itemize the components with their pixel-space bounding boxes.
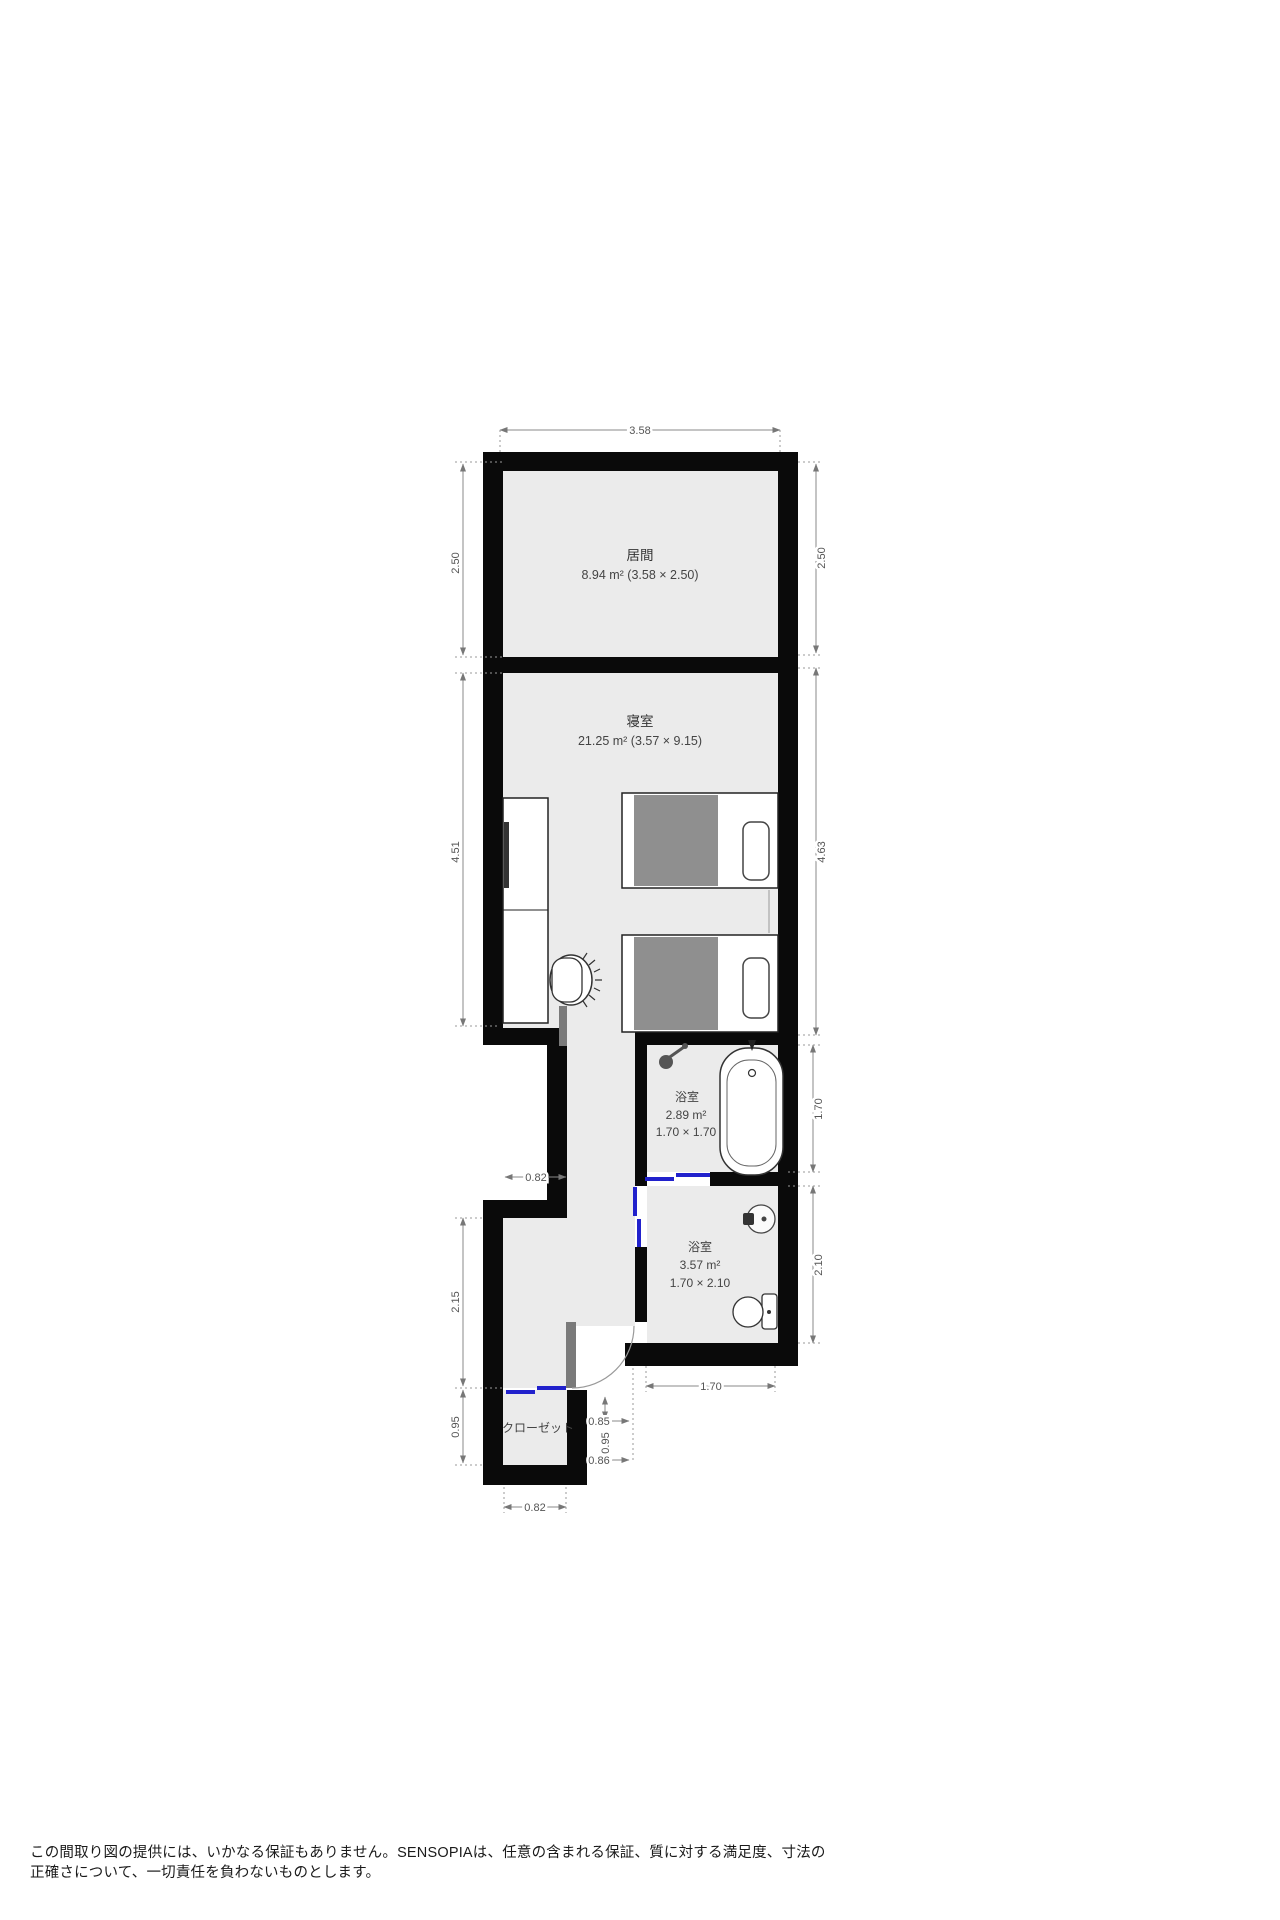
dim-top-width: 3.58	[629, 425, 650, 437]
wall-bathroom-upper-left	[635, 1045, 647, 1174]
bed-2-blanket	[634, 937, 718, 1030]
bathroom-lower-area: 3.57 m²	[680, 1258, 721, 1272]
bathtub	[720, 1040, 783, 1175]
dim-entry-b: 0.95	[600, 1432, 612, 1453]
wall-left-lower	[483, 1200, 503, 1485]
hallway-floor	[503, 1218, 567, 1388]
bedroom-door-leaf	[559, 1006, 567, 1046]
dim-closet-bottom: 0.82	[524, 1502, 545, 1514]
wall-living-bedroom-divider	[503, 657, 778, 673]
dim-bedroom-right: 4.63	[816, 841, 828, 862]
dim-bedroom-left: 4.51	[450, 841, 462, 862]
bed-2-pillow	[743, 958, 769, 1018]
wall-bathroom-bottom	[625, 1343, 798, 1366]
bed-1-pillow	[743, 822, 769, 880]
dim-entry-a: 0.85	[588, 1416, 609, 1428]
floor-plan-page: 3.58 2.50 4.51 2.50 4.63 1.70 2.10 1.70 …	[0, 0, 1280, 1920]
living-room-area: 8.94 m² (3.58 × 2.50)	[581, 568, 698, 582]
disclaimer-line-2: 正確さについて、一切責任を負わないものとします。	[30, 1863, 1190, 1883]
dim-notch-width: 0.82	[525, 1172, 546, 1184]
desk-monitor	[504, 822, 509, 888]
entry-door-leaf	[566, 1322, 576, 1388]
bathroom-lower-size: 1.70 × 2.10	[670, 1276, 731, 1290]
dim-bath-lower-right: 2.10	[813, 1254, 825, 1275]
wall-jog-upper	[483, 1028, 567, 1045]
bedroom-area: 21.25 m² (3.57 × 9.15)	[578, 734, 702, 748]
desk	[503, 798, 548, 1023]
wall-right	[778, 452, 798, 1366]
bathroom-upper-name: 浴室	[675, 1089, 699, 1104]
dim-entry-c: 0.86	[588, 1455, 609, 1467]
bathroom-upper-size: 1.70 × 1.70	[656, 1125, 717, 1139]
dim-bath-lower-bottom: 1.70	[700, 1381, 721, 1393]
disclaimer-line-1: この間取り図の提供には、いかなる保証もありません。SENSOPIAは、任意の含ま…	[30, 1843, 1190, 1863]
floor-plan-svg: 3.58 2.50 4.51 2.50 4.63 1.70 2.10 1.70 …	[0, 0, 1280, 1920]
dim-closet-left: 0.95	[450, 1416, 462, 1437]
corridor-floor	[567, 1028, 635, 1326]
closet-name: クローゼット	[502, 1421, 574, 1435]
toilet	[733, 1294, 777, 1329]
bathroom-upper-area: 2.89 m²	[666, 1108, 707, 1122]
wall-closet-bottom	[483, 1465, 587, 1485]
bathroom-upper-sliding-door	[645, 1173, 710, 1181]
disclaimer: この間取り図の提供には、いかなる保証もありません。SENSOPIAは、任意の含ま…	[30, 1843, 1190, 1883]
dim-bath-upper-right: 1.70	[813, 1098, 825, 1119]
living-room-name: 居間	[627, 548, 654, 563]
bed-1-blanket	[634, 795, 718, 886]
wall-bathroom-lower-left	[635, 1247, 647, 1322]
living-room-floor	[503, 471, 778, 657]
bedroom-name: 寝室	[627, 713, 654, 729]
dim-living-left: 2.50	[450, 552, 462, 573]
bed-2	[622, 935, 778, 1032]
wall-top	[483, 452, 798, 471]
entry-door-swing-arc	[572, 1326, 634, 1388]
wall-left-upper	[483, 452, 503, 1028]
wall-corridor-left	[547, 1045, 567, 1218]
bed-1	[622, 793, 778, 888]
dim-living-right: 2.50	[816, 547, 828, 568]
dim-hall-left: 2.15	[450, 1291, 462, 1312]
bathroom-lower-name: 浴室	[688, 1239, 712, 1254]
